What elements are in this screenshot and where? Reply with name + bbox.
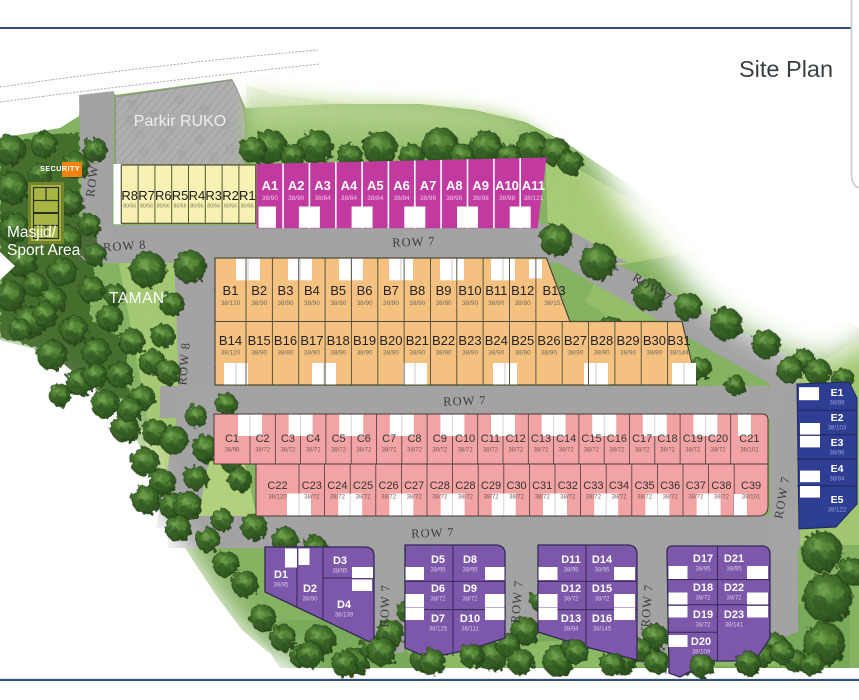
svg-text:38/90: 38/90 xyxy=(515,300,531,307)
svg-text:38/72: 38/72 xyxy=(430,597,446,603)
svg-text:D22: D22 xyxy=(724,582,744,594)
svg-text:E1: E1 xyxy=(831,387,844,399)
svg-text:38/72: 38/72 xyxy=(483,495,499,501)
svg-text:38/90: 38/90 xyxy=(383,300,399,307)
svg-text:38/90: 38/90 xyxy=(278,350,294,357)
svg-text:Parkir RUKO: Parkir RUKO xyxy=(134,113,226,130)
svg-text:38/72: 38/72 xyxy=(280,448,296,454)
svg-text:A8: A8 xyxy=(446,178,463,193)
svg-text:38/90: 38/90 xyxy=(288,195,304,202)
svg-text:C21: C21 xyxy=(739,433,759,445)
svg-text:38/72: 38/72 xyxy=(508,448,524,454)
svg-text:B12: B12 xyxy=(511,283,534,298)
svg-text:B29: B29 xyxy=(617,333,640,348)
svg-text:A7: A7 xyxy=(420,178,437,193)
svg-text:B16: B16 xyxy=(274,333,297,348)
svg-text:C35: C35 xyxy=(635,480,655,492)
svg-text:38/90: 38/90 xyxy=(262,195,278,202)
svg-text:B30: B30 xyxy=(643,333,666,348)
svg-text:C25: C25 xyxy=(353,480,373,492)
svg-text:C17: C17 xyxy=(632,433,652,445)
svg-text:38/90: 38/90 xyxy=(515,350,531,357)
svg-text:D2: D2 xyxy=(303,583,317,595)
svg-text:38/95: 38/95 xyxy=(726,567,742,573)
svg-text:38/72: 38/72 xyxy=(255,448,271,454)
svg-text:C13: C13 xyxy=(531,433,551,445)
svg-text:38/72: 38/72 xyxy=(586,495,602,501)
svg-text:ROW 7: ROW 7 xyxy=(377,584,393,628)
svg-text:38/72: 38/72 xyxy=(685,448,701,454)
svg-text:B21: B21 xyxy=(406,333,429,348)
svg-text:38/90: 38/90 xyxy=(594,350,610,357)
svg-text:80/56: 80/56 xyxy=(123,204,136,210)
svg-text:D19: D19 xyxy=(693,609,713,621)
svg-text:38/95: 38/95 xyxy=(462,568,478,574)
svg-text:A9: A9 xyxy=(472,178,489,193)
svg-text:D7: D7 xyxy=(431,613,445,625)
svg-text:38/90: 38/90 xyxy=(567,350,583,357)
svg-text:38/90: 38/90 xyxy=(620,350,636,357)
svg-text:B26: B26 xyxy=(537,333,560,348)
svg-text:38/72: 38/72 xyxy=(382,448,398,454)
svg-text:B24: B24 xyxy=(485,333,508,348)
svg-text:C22: C22 xyxy=(267,480,287,492)
svg-text:38/122: 38/122 xyxy=(828,508,847,514)
svg-text:B28: B28 xyxy=(590,333,613,348)
svg-text:C7: C7 xyxy=(382,433,396,445)
svg-text:D13: D13 xyxy=(561,613,581,625)
svg-text:38/98: 38/98 xyxy=(420,195,436,202)
svg-text:38/98: 38/98 xyxy=(446,195,462,202)
svg-text:R2: R2 xyxy=(222,188,239,203)
svg-text:A1: A1 xyxy=(262,178,279,193)
svg-text:38/94: 38/94 xyxy=(563,627,579,633)
svg-text:C24: C24 xyxy=(327,480,347,492)
svg-text:38/72: 38/72 xyxy=(609,448,625,454)
svg-text:38/90: 38/90 xyxy=(330,300,346,307)
svg-text:38/72: 38/72 xyxy=(462,597,478,603)
svg-text:C29: C29 xyxy=(481,480,501,492)
svg-text:C8: C8 xyxy=(407,433,421,445)
svg-text:B10: B10 xyxy=(458,283,481,298)
svg-text:B14: B14 xyxy=(219,333,242,348)
svg-text:C2: C2 xyxy=(256,433,270,445)
svg-text:D12: D12 xyxy=(561,583,581,595)
svg-text:B1: B1 xyxy=(223,283,239,298)
svg-text:SECURITY: SECURITY xyxy=(40,164,80,173)
svg-text:38/103: 38/103 xyxy=(828,426,847,432)
svg-text:38/111: 38/111 xyxy=(461,627,479,633)
svg-text:D18: D18 xyxy=(693,582,713,594)
svg-text:C28: C28 xyxy=(430,480,450,492)
svg-text:C32: C32 xyxy=(558,480,578,492)
svg-text:80/56: 80/56 xyxy=(207,204,220,210)
svg-text:38/72: 38/72 xyxy=(458,448,474,454)
svg-text:38/72: 38/72 xyxy=(710,448,726,454)
svg-text:38/101: 38/101 xyxy=(742,495,761,501)
svg-text:80/56: 80/56 xyxy=(157,204,170,210)
svg-text:38/90: 38/90 xyxy=(304,300,320,307)
svg-text:38/90: 38/90 xyxy=(383,350,399,357)
svg-text:B27: B27 xyxy=(564,333,587,348)
svg-text:38/95: 38/95 xyxy=(273,583,289,589)
svg-text:38/90: 38/90 xyxy=(357,300,373,307)
svg-text:38/72: 38/72 xyxy=(688,495,704,501)
svg-text:38/90: 38/90 xyxy=(436,350,452,357)
svg-text:C31: C31 xyxy=(532,480,552,492)
svg-text:38/72: 38/72 xyxy=(559,448,575,454)
svg-text:38/145: 38/145 xyxy=(593,627,612,633)
svg-text:D21: D21 xyxy=(724,553,744,565)
svg-text:38/72: 38/72 xyxy=(695,596,711,602)
svg-text:38/98: 38/98 xyxy=(473,195,489,202)
svg-text:38/72: 38/72 xyxy=(584,448,600,454)
svg-text:38/101: 38/101 xyxy=(740,448,759,454)
svg-text:B9: B9 xyxy=(436,283,452,298)
svg-text:C18: C18 xyxy=(657,433,677,445)
svg-text:R1: R1 xyxy=(239,188,256,203)
svg-text:B15: B15 xyxy=(248,333,271,348)
svg-text:R3: R3 xyxy=(205,188,222,203)
svg-text:38/72: 38/72 xyxy=(509,495,525,501)
svg-text:38/84: 38/84 xyxy=(367,195,383,202)
svg-text:A2: A2 xyxy=(288,178,305,193)
svg-text:38/120: 38/120 xyxy=(221,350,241,357)
svg-text:D4: D4 xyxy=(337,599,352,611)
svg-text:38/72: 38/72 xyxy=(458,495,474,501)
svg-text:C3: C3 xyxy=(281,433,295,445)
svg-text:80/56: 80/56 xyxy=(224,204,237,210)
svg-text:B25: B25 xyxy=(511,333,534,348)
svg-text:38/96: 38/96 xyxy=(224,448,240,454)
svg-text:D10: D10 xyxy=(460,613,480,625)
svg-text:B13: B13 xyxy=(543,283,566,298)
svg-text:B20: B20 xyxy=(379,333,402,348)
svg-text:38/72: 38/72 xyxy=(535,495,551,501)
svg-text:38/72: 38/72 xyxy=(330,495,346,501)
svg-text:C4: C4 xyxy=(306,433,320,445)
svg-text:E4: E4 xyxy=(831,463,844,475)
svg-text:B6: B6 xyxy=(357,283,373,298)
svg-text:D15: D15 xyxy=(592,583,612,595)
svg-text:38/90: 38/90 xyxy=(462,350,478,357)
svg-text:38/72: 38/72 xyxy=(356,448,372,454)
svg-text:Masjid/: Masjid/ xyxy=(7,224,57,241)
svg-text:38/90: 38/90 xyxy=(409,300,425,307)
svg-text:38/90: 38/90 xyxy=(409,350,425,357)
svg-text:38/72: 38/72 xyxy=(635,448,651,454)
svg-text:D8: D8 xyxy=(463,554,477,566)
svg-text:38/90: 38/90 xyxy=(541,350,557,357)
svg-text:B8: B8 xyxy=(409,283,425,298)
svg-text:C39: C39 xyxy=(741,480,761,492)
svg-text:B2: B2 xyxy=(251,283,267,298)
svg-text:D5: D5 xyxy=(431,554,445,566)
svg-text:38/90: 38/90 xyxy=(330,350,346,357)
svg-text:C1: C1 xyxy=(225,433,239,445)
svg-text:80/56: 80/56 xyxy=(174,204,187,210)
svg-text:B17: B17 xyxy=(300,333,323,348)
svg-text:38/121: 38/121 xyxy=(524,195,544,202)
svg-text:C23: C23 xyxy=(302,480,322,492)
svg-text:38/157: 38/157 xyxy=(544,300,564,307)
svg-text:C28: C28 xyxy=(455,480,475,492)
svg-text:C34: C34 xyxy=(609,480,629,492)
svg-text:38/72: 38/72 xyxy=(726,596,742,602)
svg-text:38/98: 38/98 xyxy=(499,195,515,202)
svg-text:38/72: 38/72 xyxy=(695,623,711,629)
svg-text:A5: A5 xyxy=(367,178,384,193)
svg-text:80/56: 80/56 xyxy=(140,204,153,210)
svg-text:38/95: 38/95 xyxy=(332,569,348,575)
svg-text:R7: R7 xyxy=(138,188,155,203)
svg-text:D16: D16 xyxy=(592,613,612,625)
svg-text:R5: R5 xyxy=(172,188,189,203)
svg-text:C10: C10 xyxy=(455,433,475,445)
svg-text:Sport Area: Sport Area xyxy=(7,242,81,259)
svg-text:D20: D20 xyxy=(691,636,711,648)
svg-text:C33: C33 xyxy=(583,480,603,492)
svg-text:38/84: 38/84 xyxy=(394,195,410,202)
svg-text:B19: B19 xyxy=(353,333,376,348)
svg-text:38/120: 38/120 xyxy=(221,300,241,307)
svg-text:C5: C5 xyxy=(332,433,346,445)
svg-text:38/72: 38/72 xyxy=(432,448,448,454)
svg-text:ROW 7: ROW 7 xyxy=(411,525,455,541)
svg-text:38/72: 38/72 xyxy=(331,448,347,454)
svg-text:D14: D14 xyxy=(592,554,613,566)
svg-text:B4: B4 xyxy=(304,283,320,298)
svg-text:D6: D6 xyxy=(431,583,445,595)
svg-text:C36: C36 xyxy=(660,480,680,492)
svg-text:R6: R6 xyxy=(155,188,172,203)
svg-text:38/72: 38/72 xyxy=(560,495,576,501)
svg-text:B18: B18 xyxy=(327,333,350,348)
svg-text:C12: C12 xyxy=(506,433,526,445)
svg-text:38/125: 38/125 xyxy=(429,627,448,633)
svg-text:E2: E2 xyxy=(831,412,844,424)
svg-text:C9: C9 xyxy=(433,433,447,445)
svg-text:38/72: 38/72 xyxy=(533,448,549,454)
svg-text:38/90: 38/90 xyxy=(278,300,294,307)
svg-text:TAMAN: TAMAN xyxy=(109,290,165,307)
svg-text:38/90: 38/90 xyxy=(488,350,504,357)
svg-text:B3: B3 xyxy=(278,283,294,298)
svg-text:R8: R8 xyxy=(121,188,138,203)
svg-text:38/95: 38/95 xyxy=(695,567,711,573)
svg-text:D3: D3 xyxy=(333,555,347,567)
svg-text:C27: C27 xyxy=(404,480,424,492)
svg-text:80/56: 80/56 xyxy=(190,204,203,210)
svg-text:38/72: 38/72 xyxy=(660,448,676,454)
svg-text:E5: E5 xyxy=(831,494,844,506)
svg-text:38/120: 38/120 xyxy=(268,495,287,501)
svg-text:38/90: 38/90 xyxy=(462,300,478,307)
svg-text:38/72: 38/72 xyxy=(483,448,499,454)
svg-text:C38: C38 xyxy=(711,480,731,492)
svg-text:38/84: 38/84 xyxy=(829,477,845,483)
svg-text:38/141: 38/141 xyxy=(725,623,744,629)
svg-text:38/144: 38/144 xyxy=(669,350,689,357)
svg-text:38/72: 38/72 xyxy=(407,448,423,454)
svg-text:80/56: 80/56 xyxy=(241,204,254,210)
svg-text:38/90: 38/90 xyxy=(304,350,320,357)
svg-text:38/88: 38/88 xyxy=(829,401,845,407)
svg-text:ROW 7: ROW 7 xyxy=(443,393,487,409)
svg-text:C37: C37 xyxy=(686,480,706,492)
svg-text:38/95: 38/95 xyxy=(594,568,610,574)
svg-text:38/72: 38/72 xyxy=(381,495,397,501)
svg-text:38/72: 38/72 xyxy=(714,495,730,501)
svg-text:C26: C26 xyxy=(379,480,399,492)
svg-text:D17: D17 xyxy=(693,553,713,565)
svg-text:38/72: 38/72 xyxy=(304,495,320,501)
svg-text:38/90: 38/90 xyxy=(646,350,662,357)
svg-text:B5: B5 xyxy=(330,283,346,298)
svg-text:E3: E3 xyxy=(831,437,844,449)
svg-text:A6: A6 xyxy=(393,178,410,193)
svg-text:B7: B7 xyxy=(383,283,399,298)
svg-text:38/95: 38/95 xyxy=(563,568,579,574)
svg-text:C14: C14 xyxy=(556,433,576,445)
svg-text:C20: C20 xyxy=(708,433,728,445)
svg-text:38/90: 38/90 xyxy=(357,350,373,357)
svg-text:C16: C16 xyxy=(607,433,627,445)
svg-text:38/72: 38/72 xyxy=(611,495,627,501)
svg-text:Site Plan: Site Plan xyxy=(739,56,833,82)
svg-text:A11: A11 xyxy=(522,178,545,193)
svg-text:B23: B23 xyxy=(458,333,481,348)
svg-text:38/95: 38/95 xyxy=(430,568,446,574)
svg-text:38/139: 38/139 xyxy=(335,613,354,619)
svg-text:C19: C19 xyxy=(683,433,703,445)
svg-text:A3: A3 xyxy=(314,178,331,193)
svg-text:D1: D1 xyxy=(274,569,288,581)
svg-text:B31: B31 xyxy=(667,333,690,348)
svg-text:38/72: 38/72 xyxy=(663,495,679,501)
svg-text:38/72: 38/72 xyxy=(432,495,448,501)
svg-text:38/96: 38/96 xyxy=(829,451,845,457)
svg-text:38/72: 38/72 xyxy=(355,495,371,501)
svg-text:A10: A10 xyxy=(495,178,519,193)
svg-text:D23: D23 xyxy=(724,609,744,621)
svg-text:38/72: 38/72 xyxy=(563,597,579,603)
svg-text:D9: D9 xyxy=(463,583,477,595)
svg-text:38/90: 38/90 xyxy=(302,597,318,603)
svg-text:38/90: 38/90 xyxy=(251,350,267,357)
svg-text:38/84: 38/84 xyxy=(341,195,357,202)
svg-text:C11: C11 xyxy=(481,433,500,445)
svg-text:C15: C15 xyxy=(581,433,601,445)
svg-text:38/90: 38/90 xyxy=(488,300,504,307)
svg-text:38/90: 38/90 xyxy=(436,300,452,307)
svg-text:R4: R4 xyxy=(189,188,206,203)
svg-text:C6: C6 xyxy=(357,433,371,445)
svg-text:C30: C30 xyxy=(507,480,527,492)
svg-text:38/72: 38/72 xyxy=(637,495,653,501)
svg-text:38/72: 38/72 xyxy=(594,597,610,603)
svg-text:38/72: 38/72 xyxy=(407,495,423,501)
svg-text:B11: B11 xyxy=(485,283,507,298)
svg-text:38/90: 38/90 xyxy=(251,300,267,307)
svg-text:ROW 7: ROW 7 xyxy=(392,234,436,250)
svg-text:B22: B22 xyxy=(432,333,455,348)
svg-text:38/72: 38/72 xyxy=(306,448,322,454)
svg-text:A4: A4 xyxy=(341,178,358,193)
svg-text:38/84: 38/84 xyxy=(315,195,331,202)
svg-text:D11: D11 xyxy=(561,554,581,566)
